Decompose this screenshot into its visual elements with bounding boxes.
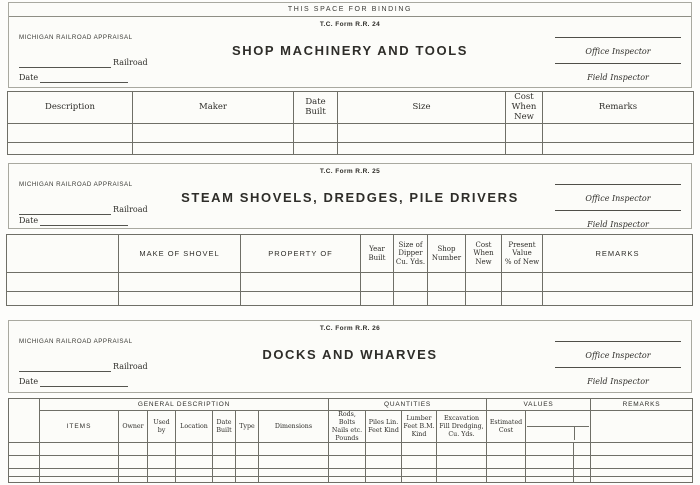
form-rr24-header-box: THIS SPACE FOR BINDING T.C. Form R.R. 24… xyxy=(8,2,692,88)
empty-cell xyxy=(119,469,148,477)
col-header-cost-when-new: Cost When New xyxy=(506,92,543,124)
empty-cell xyxy=(428,292,466,306)
table-rr24-header-row: Description Maker Date Built Size Cost W… xyxy=(8,92,694,124)
col-header-excavation: Excavation Fill Dredging, Cu. Yds. xyxy=(437,411,487,443)
table-rr26-subheader-row: ITEMS Owner Used by Location Date Built … xyxy=(9,411,693,443)
empty-cell xyxy=(437,477,487,483)
empty-cell xyxy=(176,443,213,456)
signature-rule xyxy=(555,55,681,64)
empty-cell xyxy=(259,477,329,483)
empty-cell xyxy=(366,469,402,477)
col-header-make-of-shovel: MAKE OF SHOVEL xyxy=(119,235,241,273)
col-header-remarks: REMARKS xyxy=(543,235,693,273)
empty-cell xyxy=(574,443,591,456)
form-rr24-head: T.C. Form R.R. 24 MICHIGAN RAILROAD APPR… xyxy=(9,17,691,88)
field-inspector-signature: Field Inspector xyxy=(555,359,681,388)
empty-cell xyxy=(9,477,40,483)
empty-cell xyxy=(402,469,437,477)
col-header-present-value: Present Value % of New xyxy=(502,235,543,273)
railroad-label: Railroad xyxy=(113,362,148,371)
empty-cell xyxy=(402,477,437,483)
group-header-quantities: QUANTITIES xyxy=(329,399,487,411)
col-header-piles: Piles Lin. Feet Kind xyxy=(366,411,402,443)
empty-cell xyxy=(487,477,526,483)
empty-cell xyxy=(329,456,366,469)
empty-cell xyxy=(428,273,466,292)
col-header-maker: Maker xyxy=(133,92,294,124)
date-fill-line: Date xyxy=(19,377,128,387)
table-row xyxy=(9,443,693,456)
empty-cell xyxy=(7,292,119,306)
empty-cell xyxy=(8,123,133,142)
agency-name: MICHIGAN RAILROAD APPRAISAL xyxy=(19,338,133,345)
col-header-dimensions: Dimensions xyxy=(259,411,329,443)
empty-cell xyxy=(487,443,526,456)
signature-rule xyxy=(555,176,681,185)
empty-cell xyxy=(236,456,259,469)
col-header-items: ITEMS xyxy=(40,411,119,443)
values-split-lower xyxy=(527,427,589,440)
col-header-year-built: Year Built xyxy=(361,235,394,273)
empty-cell xyxy=(338,142,506,154)
empty-cell xyxy=(213,477,236,483)
empty-cell xyxy=(526,477,574,483)
field-inspector-signature: Field Inspector xyxy=(555,202,681,231)
empty-cell xyxy=(487,469,526,477)
col-header-estimated-cost: Estimated Cost xyxy=(487,411,526,443)
values-split-upper xyxy=(527,413,589,427)
empty-cell xyxy=(9,443,40,456)
empty-cell xyxy=(591,443,693,456)
empty-cell xyxy=(487,456,526,469)
date-label: Date xyxy=(19,377,38,386)
empty-cell xyxy=(213,469,236,477)
empty-cell xyxy=(366,477,402,483)
railroad-fill-line: Railroad xyxy=(19,205,148,215)
agency-name: MICHIGAN RAILROAD APPRAISAL xyxy=(19,181,133,188)
empty-cell xyxy=(40,469,119,477)
empty-cell xyxy=(294,123,338,142)
empty-cell xyxy=(259,443,329,456)
empty-cell xyxy=(466,273,502,292)
empty-cell xyxy=(402,443,437,456)
date-label: Date xyxy=(19,216,38,225)
date-blank-rule xyxy=(40,217,128,226)
empty-cell xyxy=(259,456,329,469)
empty-cell xyxy=(119,443,148,456)
agency-name: MICHIGAN RAILROAD APPRAISAL xyxy=(19,34,133,41)
empty-cell xyxy=(294,142,338,154)
empty-cell xyxy=(543,292,693,306)
table-rr25: MAKE OF SHOVEL PROPERTY OF Year Built Si… xyxy=(6,234,693,306)
values-split-dollars xyxy=(527,427,574,440)
table-row xyxy=(7,273,693,292)
signature-rule xyxy=(555,359,681,368)
col-header-lumber: Lumber Feet B.M. Kind xyxy=(402,411,437,443)
col-header-type: Type xyxy=(236,411,259,443)
table-rr24: Description Maker Date Built Size Cost W… xyxy=(7,91,694,155)
empty-cell xyxy=(40,443,119,456)
col-header-cost-when-new: Cost When New xyxy=(466,235,502,273)
table-row xyxy=(7,292,693,306)
date-blank-rule xyxy=(40,378,128,387)
col-header-owner: Owner xyxy=(119,411,148,443)
empty-cell xyxy=(40,456,119,469)
empty-cell xyxy=(9,456,40,469)
values-split-cents xyxy=(574,427,589,440)
empty-cell xyxy=(574,456,591,469)
railroad-fill-line: Railroad xyxy=(19,58,148,68)
empty-cell xyxy=(543,142,694,154)
empty-cell xyxy=(591,477,693,483)
office-inspector-signature: Office Inspector xyxy=(555,29,681,58)
empty-cell xyxy=(502,273,543,292)
group-header-values: VALUES xyxy=(487,399,591,411)
empty-cell xyxy=(236,443,259,456)
railroad-fill-line: Railroad xyxy=(19,362,148,372)
form-number: T.C. Form R.R. 26 xyxy=(9,325,691,332)
date-fill-line: Date xyxy=(19,73,128,83)
group-header-general-description: GENERAL DESCRIPTION xyxy=(40,399,329,411)
empty-cell xyxy=(148,477,176,483)
empty-cell xyxy=(241,292,361,306)
remarks-blank-subheader xyxy=(591,411,693,443)
form-rr26-head: T.C. Form R.R. 26 MICHIGAN RAILROAD APPR… xyxy=(9,321,691,392)
table-row xyxy=(9,469,693,477)
table-row xyxy=(8,142,694,154)
table-rr26-group-header-row: GENERAL DESCRIPTION QUANTITIES VALUES RE… xyxy=(9,399,693,411)
railroad-label: Railroad xyxy=(113,58,148,67)
empty-cell xyxy=(8,142,133,154)
col-header-date-built: Date Built xyxy=(213,411,236,443)
empty-cell xyxy=(7,273,119,292)
col-header-used-by: Used by xyxy=(148,411,176,443)
railroad-blank-rule xyxy=(19,59,111,68)
empty-cell xyxy=(176,477,213,483)
empty-cell xyxy=(133,142,294,154)
table-row xyxy=(9,477,693,483)
empty-cell xyxy=(502,292,543,306)
empty-cell xyxy=(241,273,361,292)
empty-cell xyxy=(236,469,259,477)
office-inspector-signature: Office Inspector xyxy=(555,176,681,205)
empty-cell xyxy=(213,443,236,456)
empty-cell xyxy=(176,469,213,477)
empty-cell xyxy=(543,123,694,142)
empty-cell xyxy=(591,469,693,477)
binding-strip: THIS SPACE FOR BINDING xyxy=(9,3,691,17)
empty-cell xyxy=(213,456,236,469)
empty-cell xyxy=(366,456,402,469)
empty-cell xyxy=(119,477,148,483)
blank-header-cell xyxy=(7,235,119,273)
empty-cell xyxy=(119,456,148,469)
blank-corner-cell xyxy=(9,399,40,443)
table-row xyxy=(8,123,694,142)
empty-cell xyxy=(133,123,294,142)
empty-cell xyxy=(591,456,693,469)
group-header-remarks: REMARKS xyxy=(591,399,693,411)
form-number: T.C. Form R.R. 24 xyxy=(9,21,691,28)
signature-rule xyxy=(555,202,681,211)
empty-cell xyxy=(361,292,394,306)
empty-cell xyxy=(236,477,259,483)
empty-cell xyxy=(526,469,574,477)
empty-cell xyxy=(437,469,487,477)
empty-cell xyxy=(361,273,394,292)
empty-cell xyxy=(176,456,213,469)
railroad-blank-rule xyxy=(19,206,111,215)
col-header-size-of-dipper: Size of Dipper Cu. Yds. xyxy=(394,235,428,273)
table-row xyxy=(9,456,693,469)
empty-cell xyxy=(466,292,502,306)
form-rr25-head: T.C. Form R.R. 25 MICHIGAN RAILROAD APPR… xyxy=(9,164,691,228)
empty-cell xyxy=(574,469,591,477)
empty-cell xyxy=(148,456,176,469)
empty-cell xyxy=(526,443,574,456)
col-header-rods-bolts-nails: Rods, Bolts Nails etc. Pounds xyxy=(329,411,366,443)
empty-cell xyxy=(506,142,543,154)
empty-cell xyxy=(437,456,487,469)
signature-rule xyxy=(555,29,681,38)
field-inspector-label: Field Inspector xyxy=(587,73,649,82)
col-header-remarks: Remarks xyxy=(543,92,694,124)
col-header-shop-number: Shop Number xyxy=(428,235,466,273)
empty-cell xyxy=(40,477,119,483)
table-rr25-header-row: MAKE OF SHOVEL PROPERTY OF Year Built Si… xyxy=(7,235,693,273)
scanned-document-page: THIS SPACE FOR BINDING T.C. Form R.R. 24… xyxy=(0,0,700,485)
empty-cell xyxy=(526,456,574,469)
empty-cell xyxy=(259,469,329,477)
empty-cell xyxy=(394,292,428,306)
empty-cell xyxy=(574,477,591,483)
field-inspector-signature: Field Inspector xyxy=(555,55,681,84)
empty-cell xyxy=(119,273,241,292)
values-dollars-cents-cell xyxy=(526,411,591,443)
empty-cell xyxy=(329,477,366,483)
table-rr26: GENERAL DESCRIPTION QUANTITIES VALUES RE… xyxy=(8,398,693,483)
empty-cell xyxy=(148,469,176,477)
empty-cell xyxy=(329,469,366,477)
empty-cell xyxy=(394,273,428,292)
empty-cell xyxy=(338,123,506,142)
empty-cell xyxy=(119,292,241,306)
col-header-property-of: PROPERTY OF xyxy=(241,235,361,273)
signature-rule xyxy=(555,333,681,342)
col-header-size: Size xyxy=(338,92,506,124)
date-blank-rule xyxy=(40,74,128,83)
form-number: T.C. Form R.R. 25 xyxy=(9,168,691,175)
empty-cell xyxy=(366,443,402,456)
railroad-blank-rule xyxy=(19,363,111,372)
empty-cell xyxy=(9,469,40,477)
empty-cell xyxy=(506,123,543,142)
col-header-date-built: Date Built xyxy=(294,92,338,124)
empty-cell xyxy=(329,443,366,456)
form-rr26-header-box: T.C. Form R.R. 26 MICHIGAN RAILROAD APPR… xyxy=(8,320,692,393)
field-inspector-label: Field Inspector xyxy=(587,220,649,229)
empty-cell xyxy=(402,456,437,469)
railroad-label: Railroad xyxy=(113,205,148,214)
col-header-location: Location xyxy=(176,411,213,443)
empty-cell xyxy=(437,443,487,456)
empty-cell xyxy=(148,443,176,456)
col-header-description: Description xyxy=(8,92,133,124)
date-label: Date xyxy=(19,73,38,82)
form-rr25-header-box: T.C. Form R.R. 25 MICHIGAN RAILROAD APPR… xyxy=(8,163,692,229)
binding-label: THIS SPACE FOR BINDING xyxy=(288,6,412,13)
field-inspector-label: Field Inspector xyxy=(587,377,649,386)
date-fill-line: Date xyxy=(19,216,128,226)
empty-cell xyxy=(543,273,693,292)
office-inspector-signature: Office Inspector xyxy=(555,333,681,362)
